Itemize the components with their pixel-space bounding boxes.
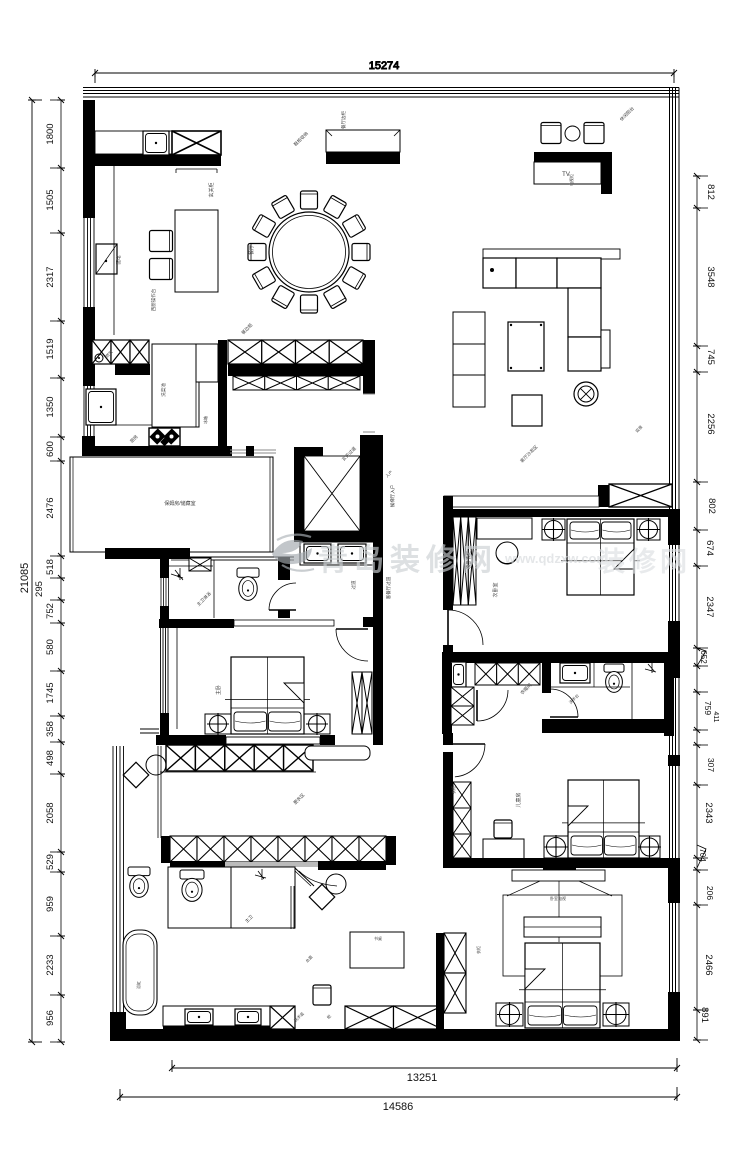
svg-text:浴缸: 浴缸 — [135, 981, 141, 989]
svg-text:2317: 2317 — [45, 266, 56, 287]
svg-text:802: 802 — [706, 498, 717, 514]
svg-text:衣柜: 衣柜 — [450, 786, 456, 794]
svg-text:卧室电视: 卧室电视 — [550, 895, 566, 901]
svg-text:411: 411 — [712, 711, 719, 722]
svg-text:西厨操作台: 西厨操作台 — [150, 288, 157, 311]
svg-text:2466: 2466 — [703, 954, 714, 975]
svg-text:客餐厅过道: 客餐厅过道 — [385, 576, 392, 599]
svg-text:1505: 1505 — [45, 189, 56, 210]
svg-text:次卧室: 次卧室 — [492, 582, 499, 597]
svg-text:956: 956 — [45, 1010, 56, 1026]
svg-text:518: 518 — [45, 559, 56, 575]
svg-text:www.qdzxw.com: www.qdzxw.com — [504, 551, 608, 566]
svg-text:15274: 15274 — [369, 60, 400, 72]
svg-text:358: 358 — [45, 721, 56, 737]
svg-text:498: 498 — [45, 750, 56, 766]
svg-text:装修网: 装修网 — [598, 547, 691, 577]
svg-text:21085: 21085 — [19, 563, 31, 594]
svg-text:1519: 1519 — [45, 338, 56, 359]
svg-text:652: 652 — [699, 650, 708, 664]
svg-text:衣柜: 衣柜 — [475, 946, 481, 954]
svg-text:主卧: 主卧 — [215, 685, 222, 695]
svg-text:保姆房/储藏室: 保姆房/储藏室 — [164, 500, 195, 507]
svg-text:206: 206 — [705, 886, 715, 900]
svg-text:2233: 2233 — [45, 954, 56, 975]
svg-text:745: 745 — [705, 349, 716, 365]
svg-text:玄关柜: 玄关柜 — [208, 182, 215, 197]
svg-text:13251: 13251 — [407, 1072, 438, 1084]
svg-text:752: 752 — [45, 603, 56, 619]
svg-text:891: 891 — [699, 1007, 710, 1023]
svg-text:洗菜池: 洗菜池 — [160, 383, 167, 397]
svg-text:次卧衣柜: 次卧衣柜 — [465, 551, 472, 569]
svg-text:儿童房: 儿童房 — [515, 792, 522, 807]
svg-text:580: 580 — [45, 639, 56, 655]
svg-text:1745: 1745 — [45, 682, 56, 703]
svg-text:1800: 1800 — [45, 123, 56, 144]
svg-text:3548: 3548 — [705, 266, 716, 287]
svg-text:配电: 配电 — [115, 255, 122, 264]
svg-text:307: 307 — [706, 758, 716, 772]
svg-text:295: 295 — [34, 581, 45, 597]
svg-text:餐厅边柜: 餐厅边柜 — [340, 111, 347, 129]
svg-text:959: 959 — [45, 896, 56, 912]
svg-text:候梯厅入户: 候梯厅入户 — [389, 485, 396, 508]
svg-text:2058: 2058 — [45, 802, 56, 823]
svg-text:2343: 2343 — [703, 802, 714, 823]
svg-text:674: 674 — [704, 540, 715, 556]
svg-text:餐厅: 餐厅 — [248, 245, 255, 255]
svg-text:529: 529 — [45, 854, 56, 870]
svg-text:759: 759 — [703, 701, 713, 715]
svg-text:电视柜: 电视柜 — [568, 174, 574, 186]
svg-text:2256: 2256 — [705, 413, 716, 434]
svg-text:812: 812 — [705, 184, 716, 200]
svg-text:14586: 14586 — [383, 1101, 414, 1113]
svg-text:书桌: 书桌 — [374, 935, 382, 941]
svg-text:过道: 过道 — [350, 580, 357, 589]
svg-text:青岛装修网: 青岛装修网 — [318, 544, 498, 577]
svg-text:2476: 2476 — [45, 497, 56, 518]
svg-text:1350: 1350 — [45, 396, 56, 417]
svg-text:600: 600 — [45, 441, 56, 457]
svg-text:2347: 2347 — [704, 596, 715, 617]
svg-text:冰箱: 冰箱 — [202, 416, 208, 424]
